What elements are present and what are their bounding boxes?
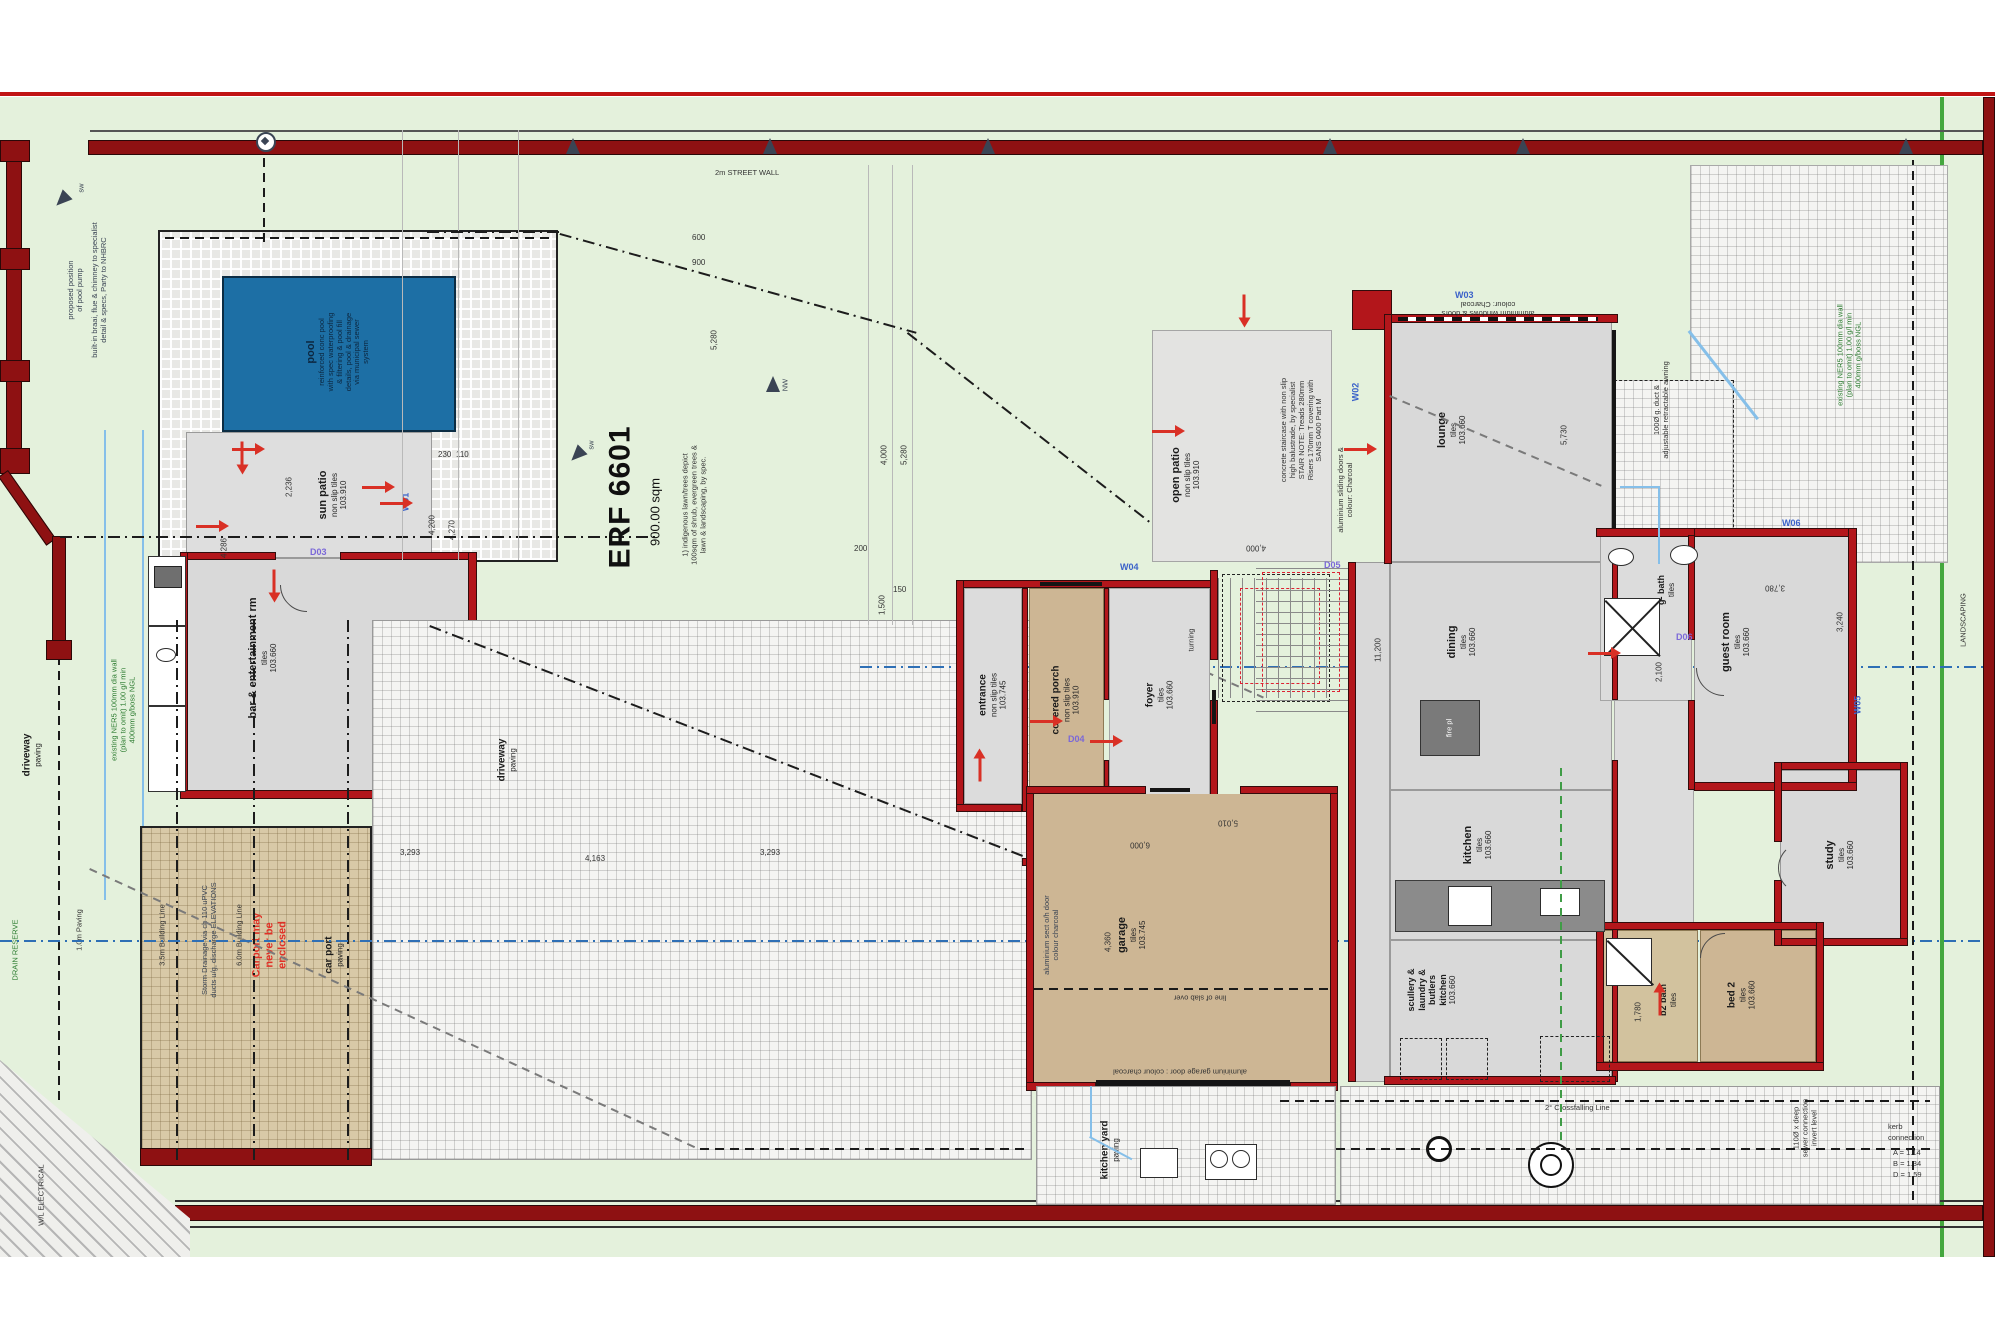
- kerb-note-b: B = 1.34: [1893, 1159, 1921, 1168]
- dim-4360: 4,360: [1103, 932, 1112, 952]
- opening-arrow: [979, 758, 982, 782]
- nw-label: NW: [782, 379, 791, 392]
- carport-rear-wall: [140, 1148, 372, 1166]
- page-margin-right: [1995, 0, 2000, 1333]
- window-note: aluminium windows & doorscolour: Charcoa…: [1442, 299, 1535, 317]
- survey-arrow: [566, 138, 580, 154]
- annex-divider: [148, 705, 186, 707]
- study-wall: [1774, 938, 1908, 946]
- dim-230: 230: [438, 450, 451, 459]
- kerb-line: [175, 1226, 1983, 1228]
- door-tag-d03: D03: [310, 547, 327, 557]
- dim-150: 150: [893, 585, 906, 594]
- study-wall: [1774, 762, 1908, 770]
- dim-900: 900: [692, 258, 705, 267]
- extension-line: [892, 165, 893, 625]
- sw-label: sw: [78, 183, 87, 192]
- window-tag-w05: W05: [1853, 696, 1864, 715]
- pool-note: pool reinforced conc poolwith spec water…: [305, 313, 371, 392]
- garage-wall: [1330, 790, 1338, 1090]
- garage-house-door: [1150, 788, 1190, 792]
- window-tag-w04: W04: [1120, 562, 1139, 572]
- driveway-paving: [372, 620, 1032, 1160]
- building-line-3-5m-label: 3.5m Building Line: [159, 904, 168, 966]
- guest-top-wall: [1694, 528, 1854, 537]
- dim-4000: 4,000: [879, 445, 888, 465]
- landscape-note: 1) indigenous lawn/trees depict100sqm of…: [682, 445, 709, 565]
- kerb-note-a: A = 1.14: [1893, 1148, 1921, 1157]
- sewer-line: [1336, 1148, 1936, 1150]
- plumbing-line: [1620, 486, 1660, 488]
- window-tag-w02: W02: [1351, 383, 1362, 402]
- porch-divider: [1022, 588, 1028, 812]
- kitchen-label: kitchentiles103.660: [1462, 826, 1494, 865]
- survey-arrow: [981, 138, 995, 154]
- bed2-wall: [1596, 922, 1824, 930]
- garage-wall: [1026, 786, 1146, 794]
- sun-patio-label: sun pationon slip tiles103.910: [317, 471, 349, 520]
- crossfall-label: 2° Crossfalling Line: [1545, 1103, 1610, 1112]
- dim-2100: 2,100: [1654, 662, 1663, 682]
- garage-label: garagetiles103.745: [1116, 917, 1148, 953]
- opening-arrow: [232, 448, 256, 451]
- erf-area: 900.00 sqm: [647, 478, 662, 546]
- building-line-3-5m: [176, 620, 178, 1160]
- erf-number: ERF 6601: [602, 425, 637, 568]
- boundary-wall-left: [6, 140, 22, 470]
- opening-arrow: [273, 570, 276, 594]
- opening-arrow: [1243, 295, 1246, 319]
- foyer-right-wall: [1210, 570, 1218, 660]
- bed2-wall: [1816, 922, 1824, 1070]
- scullery-label: scullery &laundry &butlerskitchen103.660: [1406, 968, 1458, 1011]
- dim-4163: 4,163: [585, 854, 605, 863]
- street-wall-label: 2m STREET WALL: [715, 168, 779, 177]
- appliance: [1446, 1038, 1488, 1080]
- appliance: [1540, 1036, 1610, 1082]
- stair-note: concrete staircase with non sliphigh bal…: [1280, 378, 1324, 482]
- boundary-wall-top: [88, 140, 1983, 155]
- kitchen-yard-paving: [1036, 1086, 1336, 1205]
- dim-3780: 3,780: [1765, 584, 1785, 593]
- opening-arrow: [1152, 430, 1176, 433]
- boundary-pillar: [0, 248, 30, 270]
- sliding-door-note: aluminium sliding doors &colour: Charcoa…: [1337, 447, 1355, 532]
- dim-4200: 4,200: [427, 515, 436, 535]
- eaves-line: [165, 237, 551, 239]
- dim-3240: 3,240: [1835, 612, 1844, 632]
- garage-room: [1034, 794, 1330, 1082]
- dim-5280: 5,280: [709, 330, 718, 350]
- opening-arrow: [1659, 992, 1662, 1016]
- turning-label: turning: [1188, 629, 1197, 652]
- yard-trough: [1140, 1148, 1178, 1178]
- garage-door-note-side: aluminium sect o/h doorcolour charcoal: [1043, 895, 1061, 975]
- guest-left-wall: [1688, 700, 1695, 790]
- building-line-east: [1912, 160, 1914, 1200]
- survey-marker-line: [263, 152, 265, 242]
- entrance-wall: [956, 580, 964, 812]
- fire-place-label: fire pl: [1446, 719, 1455, 737]
- driveway-label: drivewaypaving: [496, 739, 517, 782]
- study-wall: [1900, 762, 1908, 946]
- lounge-east-window: [1612, 330, 1616, 530]
- services-note-left: existing NER5 100mm dia wall(plan to omi…: [111, 659, 138, 761]
- open-patio-label: open pationon slip tiles103.910: [1170, 447, 1202, 503]
- plumbing-line: [104, 430, 106, 900]
- bed2-wall: [1596, 1062, 1824, 1071]
- opening-arrow: [196, 525, 220, 528]
- sewer-line: [700, 1148, 1030, 1150]
- house-wall: [1596, 528, 1696, 537]
- property-line-top: [0, 92, 2000, 96]
- dim-2236: 2,236: [284, 477, 293, 497]
- bar-wall: [186, 552, 276, 560]
- sw-label: sw: [588, 440, 597, 449]
- dim-11200: 11,200: [1373, 638, 1382, 662]
- north-arrow: [766, 376, 780, 392]
- electrical-label: W/L ELECTRICAL: [38, 1164, 47, 1225]
- extension-line: [912, 165, 913, 625]
- porch-beam: [1040, 582, 1102, 586]
- appliance: [1400, 1038, 1442, 1080]
- opening-arrow: [1030, 720, 1054, 723]
- window-tag-w06: W06: [1782, 518, 1801, 528]
- dim-6000: 6,000: [1130, 841, 1150, 850]
- soil-pipe-line: [1560, 762, 1562, 1140]
- entrance-wall: [956, 804, 1022, 812]
- dim-600: 600: [692, 233, 705, 242]
- house-wall: [1348, 562, 1356, 1082]
- dim-5730: 5,730: [1559, 425, 1568, 445]
- yard-tub: [1232, 1150, 1250, 1168]
- survey-marker: [256, 132, 276, 152]
- setback-line: [427, 231, 562, 233]
- main-stair-turning: [1262, 572, 1340, 692]
- drain-reserve-label: DRAIN RESERVE: [12, 919, 21, 980]
- boundary-pillar: [46, 640, 72, 660]
- plumbing-line: [1658, 486, 1660, 564]
- bar-wall: [340, 552, 474, 560]
- site-plan-drawing: LANDSCAPING 2m STREET WALL DRAIN RESERVE…: [0, 0, 2000, 1333]
- dim-1500: 1,500: [877, 595, 886, 615]
- boundary-pillar: [0, 140, 30, 162]
- dim-200: 200: [854, 544, 867, 553]
- survey-marker-core: [261, 137, 269, 145]
- window-tag-w03: W03: [1455, 290, 1474, 300]
- bar-annex: [148, 556, 186, 792]
- slab-over-label: line of slab over: [1174, 994, 1227, 1003]
- survey-arrow: [1323, 138, 1337, 154]
- kerb-note-1: kerb: [1888, 1122, 1903, 1131]
- dining-label: diningtiles103.660: [1446, 626, 1478, 659]
- crossfall-line: [1280, 1100, 1930, 1102]
- landscaping-label: LANDSCAPING: [1960, 593, 1969, 647]
- sewer-connection-note: 110Ø x deepsewer connectioninvert level: [1793, 1099, 1820, 1157]
- dim-1780: 1,780: [1633, 1002, 1642, 1022]
- centre-line-bar: [60, 536, 660, 538]
- extension-line: [402, 130, 403, 560]
- boundary-pillar: [0, 360, 30, 382]
- house-wall: [1384, 314, 1392, 564]
- boundary-wall-right: [1983, 97, 1995, 1257]
- extension-line: [518, 130, 519, 560]
- door-tag-d06: D06: [1676, 632, 1693, 642]
- stove: [1448, 886, 1492, 926]
- building-line-6m: [253, 620, 255, 1160]
- door-tag-d04: D04: [1068, 734, 1085, 744]
- study-wall: [1774, 762, 1782, 842]
- basin: [1670, 545, 1698, 565]
- boundary-line-left-dashed: [58, 660, 60, 1100]
- foyer-door-leaf: [1212, 690, 1216, 724]
- services-note-right: existing NER5 100mm dia wall(plan to omi…: [1837, 304, 1864, 406]
- basin-fixture: [156, 648, 176, 662]
- kerb-note-2: connection: [1888, 1133, 1924, 1142]
- toilet: [1608, 548, 1634, 566]
- kerb-note-d: D = 1.59: [1893, 1170, 1922, 1179]
- page-margin-bottom: [0, 1257, 2000, 1333]
- survey-arrow: [1899, 138, 1913, 154]
- bar-label: bar & entertainment rmtiles103.660: [247, 597, 279, 718]
- braai-note: built-in braai, flue & chimney to specia…: [91, 222, 109, 357]
- porch-foyer-wall: [1104, 588, 1109, 700]
- opening-arrow: [380, 502, 404, 505]
- extension-line: [868, 165, 869, 625]
- opening-arrow: [1588, 652, 1612, 655]
- door-tag-d05: D05: [1324, 560, 1341, 570]
- braai-unit: [154, 566, 182, 588]
- dim-4000-patio: 4,000: [1246, 544, 1266, 553]
- study-wall: [1774, 880, 1782, 946]
- slab-over-line: [1034, 988, 1330, 990]
- dim-5280: 5,280: [899, 445, 908, 465]
- passage-room: [1614, 700, 1694, 930]
- garage-wall: [1026, 790, 1034, 1090]
- opening-arrow: [1090, 740, 1114, 743]
- foyer-label: foyertiles103.660: [1145, 681, 1176, 710]
- dim-3293: 3,293: [400, 848, 420, 857]
- study-door-swing: [1778, 842, 1830, 894]
- extension-line: [458, 130, 459, 560]
- guest-right-wall: [1848, 528, 1857, 790]
- tank-symbol-inner: [1540, 1154, 1562, 1176]
- opening-arrow: [241, 442, 244, 466]
- opening-arrow: [362, 486, 386, 489]
- boundary-pillar: [0, 448, 30, 474]
- paving-1m-label: 1.0m Paving: [76, 909, 85, 951]
- dim-4286: 4,286: [219, 538, 228, 558]
- boundary-wall-bottom: [175, 1205, 1983, 1221]
- dim-3293: 3,293: [760, 848, 780, 857]
- annex-divider: [148, 625, 186, 627]
- duct-note: 100Ø g. duct &adjustable retractable awn…: [1653, 361, 1671, 459]
- bed2-label: bed 2tiles103.660: [1727, 981, 1758, 1010]
- garage-door-note-bottom: aluminium garage door : colour charcoal: [1113, 1068, 1247, 1077]
- dim-5010: 5,010: [1218, 819, 1238, 828]
- house-wall: [1612, 760, 1618, 1082]
- centre-line-vertical: [347, 620, 349, 1160]
- pool-pump-note: proposed positionof pool pump: [67, 260, 85, 319]
- plumbing-line: [1090, 1086, 1092, 1138]
- entrance-label: entrancenon slip tiles103.745: [978, 673, 1009, 717]
- survey-arrow: [763, 138, 777, 154]
- garage-wall: [1240, 786, 1338, 794]
- driveway-label-west: drivewaypaving: [21, 734, 42, 777]
- survey-arrow: [1516, 138, 1530, 154]
- opening-arrow: [1344, 448, 1368, 451]
- survey-line-top: [90, 130, 1983, 132]
- carport-paving: [140, 826, 372, 1160]
- yard-tub: [1210, 1150, 1228, 1168]
